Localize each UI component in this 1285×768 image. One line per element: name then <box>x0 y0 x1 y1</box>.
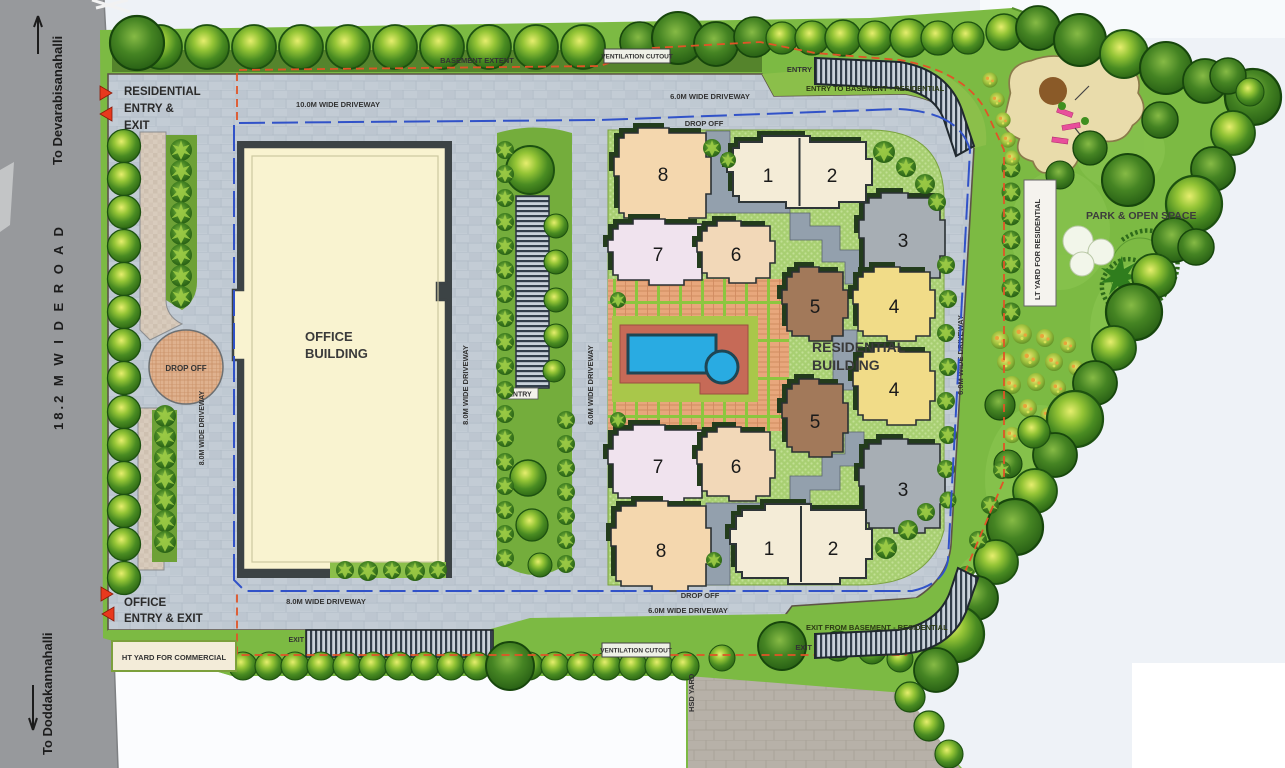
svg-text:BUILDING: BUILDING <box>812 357 880 373</box>
svg-text:LT YARD FOR RESIDENTIAL: LT YARD FOR RESIDENTIAL <box>1033 198 1042 300</box>
svg-text:4: 4 <box>889 380 900 401</box>
svg-text:5: 5 <box>810 412 821 433</box>
svg-text:8.0M WIDE DRIVEWAY: 8.0M WIDE DRIVEWAY <box>461 345 470 425</box>
svg-text:ENTRY & EXIT: ENTRY & EXIT <box>124 613 203 625</box>
svg-text:ENTRY: ENTRY <box>787 65 812 74</box>
svg-text:To Devarabisanahalli: To Devarabisanahalli <box>50 36 65 165</box>
svg-text:8.0M WIDE DRIVEWAY: 8.0M WIDE DRIVEWAY <box>199 390 206 465</box>
svg-text:To Doddakannahalli: To Doddakannahalli <box>40 632 55 755</box>
svg-text:6.0M WIDE DRIVEWAY: 6.0M WIDE DRIVEWAY <box>586 345 595 425</box>
svg-text:18.2 M W I D E R O A D: 18.2 M W I D E R O A D <box>51 224 66 430</box>
svg-text:BASEMENT EXTENT: BASEMENT EXTENT <box>440 56 514 65</box>
svg-text:10.0M WIDE DRIVEWAY: 10.0M WIDE DRIVEWAY <box>296 100 380 109</box>
svg-text:6.0M WIDE DRIVEWAY: 6.0M WIDE DRIVEWAY <box>670 92 750 101</box>
svg-text:EXIT: EXIT <box>124 120 150 132</box>
svg-text:7: 7 <box>653 457 664 478</box>
svg-text:1: 1 <box>763 166 774 187</box>
svg-text:DROP OFF: DROP OFF <box>165 364 206 373</box>
svg-text:3: 3 <box>898 480 909 501</box>
svg-text:ENTRY TO BASEMENT - RESIDENTIA: ENTRY TO BASEMENT - RESIDENTIAL <box>806 84 945 93</box>
svg-text:HSD YARD: HSD YARD <box>687 673 696 712</box>
svg-text:RESIDENTIAL: RESIDENTIAL <box>812 339 906 355</box>
svg-text:6: 6 <box>731 457 742 478</box>
svg-text:8: 8 <box>658 165 669 186</box>
svg-text:VENTILATION CUTOUT: VENTILATION CUTOUT <box>601 54 673 61</box>
svg-text:HT YARD FOR COMMERCIAL: HT YARD FOR COMMERCIAL <box>122 653 227 662</box>
svg-text:7: 7 <box>653 245 664 266</box>
svg-text:PARK & OPEN SPACE: PARK & OPEN SPACE <box>1086 210 1196 222</box>
svg-text:6: 6 <box>731 245 742 266</box>
svg-text:3: 3 <box>898 231 909 252</box>
svg-text:8.0M WIDE DRIVEWAY: 8.0M WIDE DRIVEWAY <box>286 597 366 606</box>
svg-text:2: 2 <box>827 166 838 187</box>
svg-text:4: 4 <box>889 297 900 318</box>
svg-text:VENTILATION CUTOUT: VENTILATION CUTOUT <box>600 648 672 655</box>
svg-text:OFFICE: OFFICE <box>124 597 166 609</box>
svg-text:ENTRY &: ENTRY & <box>124 103 174 115</box>
svg-text:DROP OFF: DROP OFF <box>685 119 724 128</box>
svg-text:EXIT FROM BASEMENT - RESIDENTI: EXIT FROM BASEMENT - RESIDENTIAL <box>806 623 948 632</box>
svg-text:DROP OFF: DROP OFF <box>681 591 720 600</box>
svg-text:OFFICE: OFFICE <box>305 329 353 344</box>
svg-text:EXIT: EXIT <box>795 643 812 652</box>
svg-text:EXIT: EXIT <box>288 637 304 644</box>
svg-text:6.0M WIDE DRIVEWAY: 6.0M WIDE DRIVEWAY <box>648 606 728 615</box>
svg-text:BUILDING: BUILDING <box>305 346 368 361</box>
svg-text:1: 1 <box>764 539 775 560</box>
svg-text:8: 8 <box>656 541 667 562</box>
svg-text:2: 2 <box>828 539 839 560</box>
svg-text:RESIDENTIAL: RESIDENTIAL <box>124 86 201 98</box>
svg-text:5: 5 <box>810 297 821 318</box>
